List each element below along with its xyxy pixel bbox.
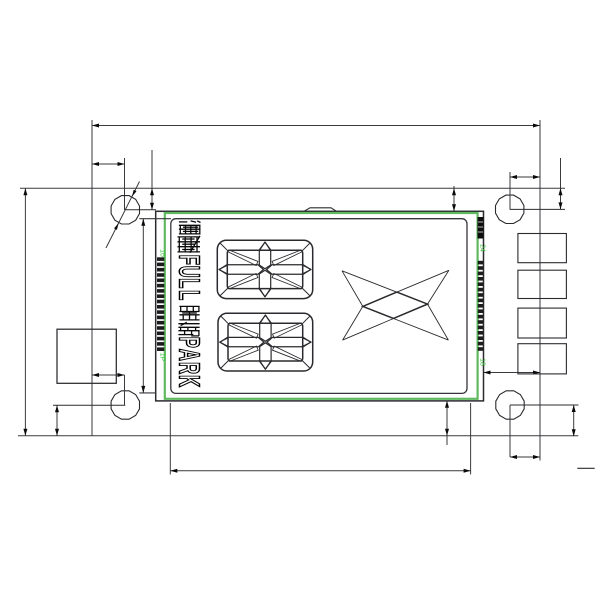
svg-text:18: 18 (479, 358, 486, 366)
svg-text:L: L (172, 278, 204, 288)
svg-text:F: F (172, 255, 204, 265)
svg-text:24: 24 (479, 244, 486, 252)
svg-text:L: L (172, 290, 204, 300)
svg-text:K: K (172, 375, 204, 387)
svg-text:P: P (172, 337, 204, 348)
svg-text:A: A (172, 349, 204, 361)
svg-text:16: 16 (159, 249, 166, 257)
svg-text:U: U (172, 266, 204, 278)
svg-text:R: R (172, 362, 204, 374)
svg-text:1P: 1P (159, 353, 166, 362)
